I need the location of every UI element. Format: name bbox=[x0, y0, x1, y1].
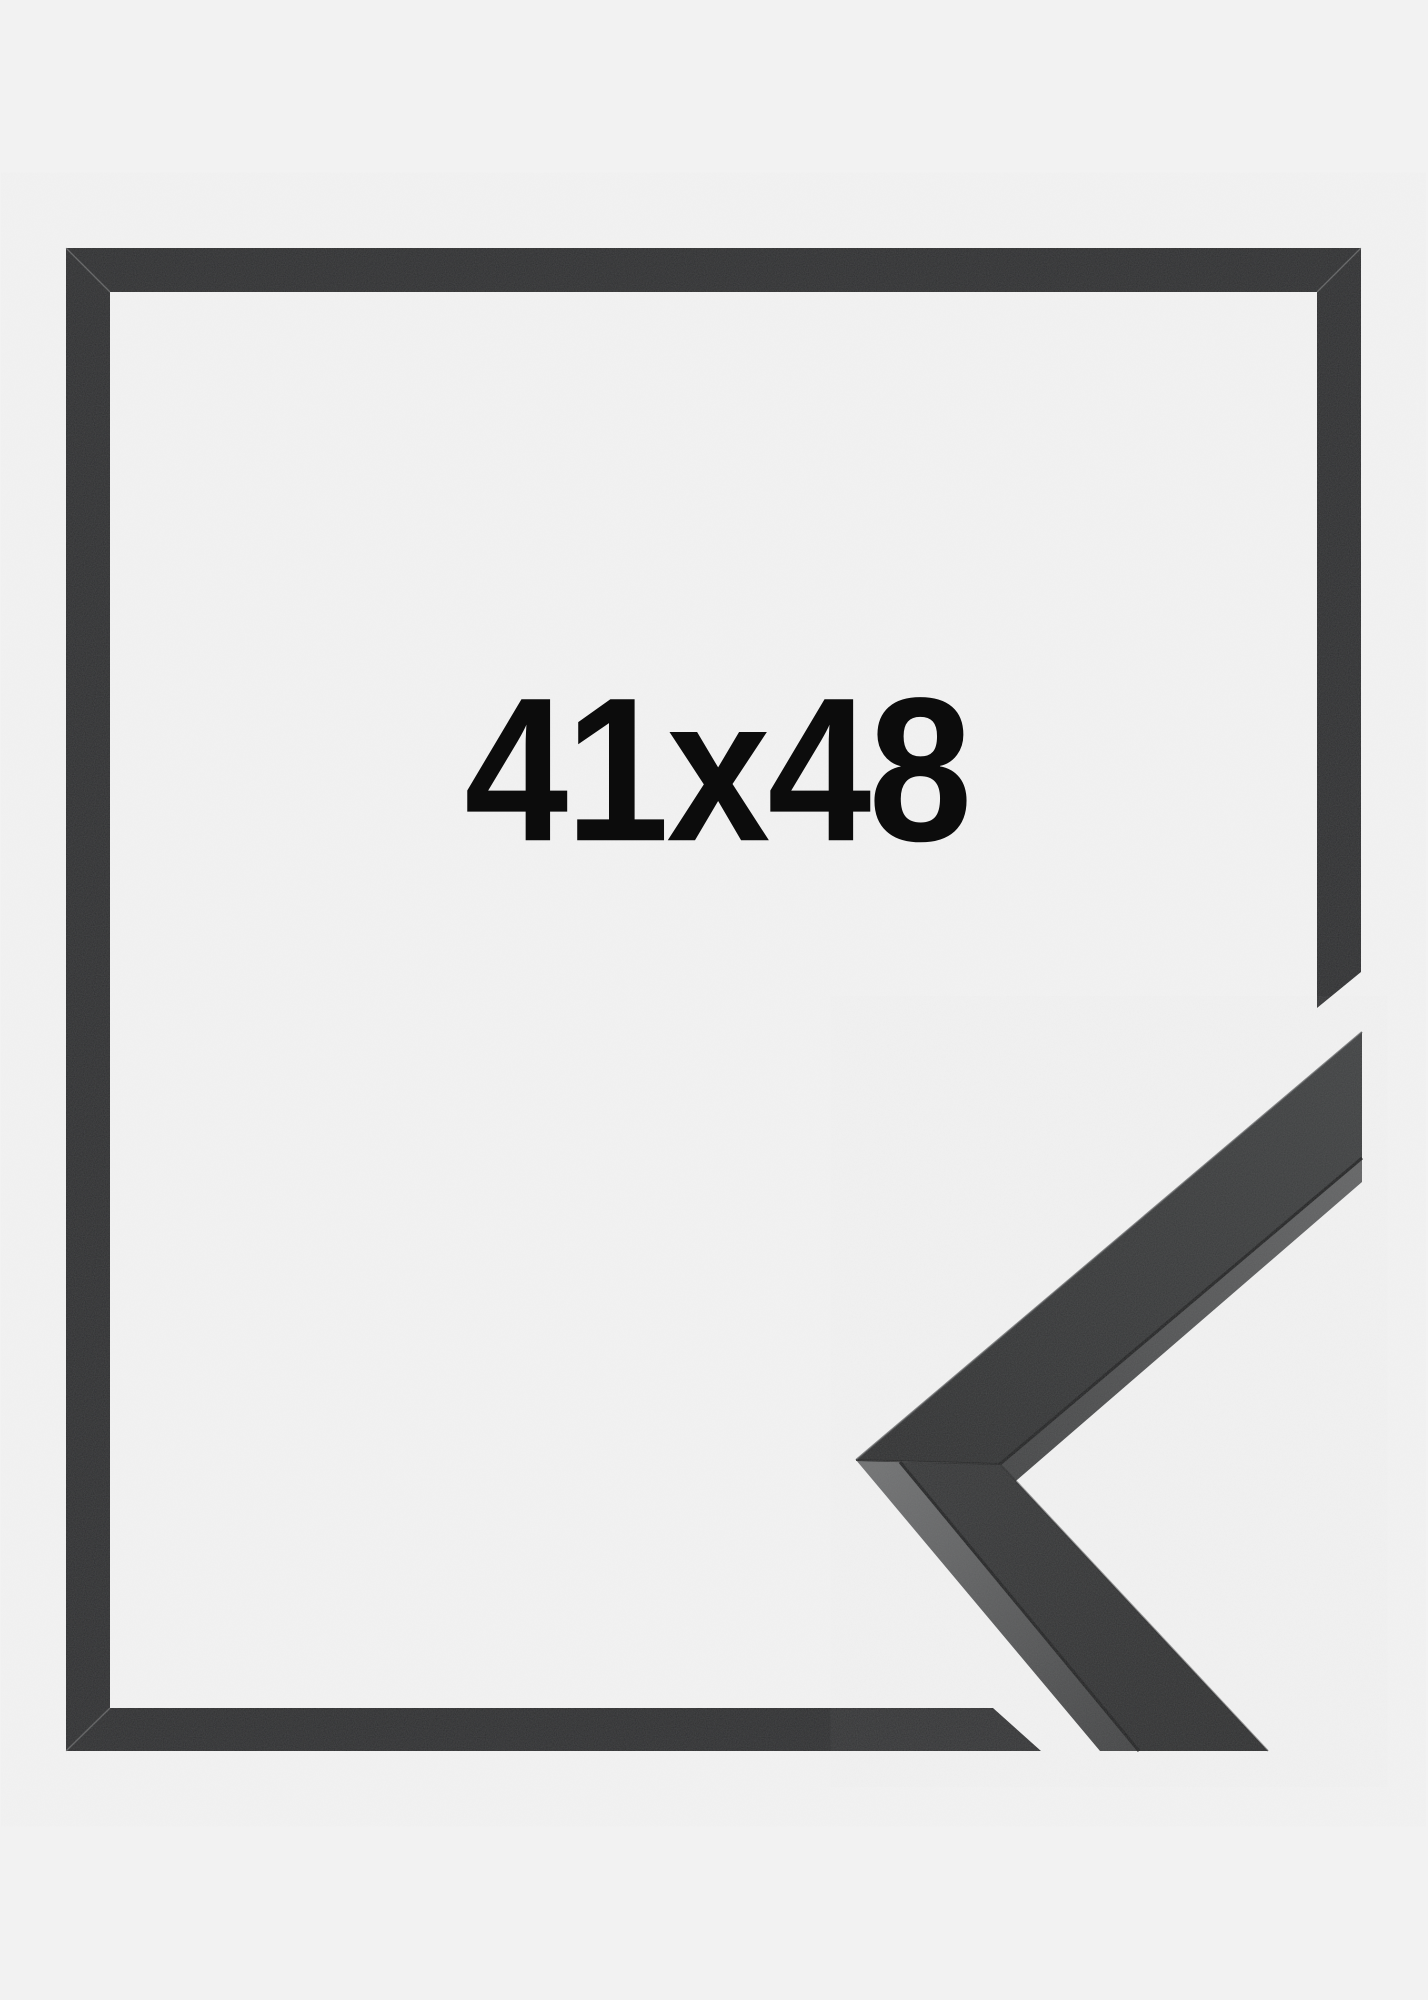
frame-top-bar bbox=[66, 248, 1361, 292]
product-image: 41x48 bbox=[0, 0, 1428, 2000]
corner-sample bbox=[856, 1032, 1362, 1751]
frame-bottom-bar bbox=[66, 1708, 1041, 1751]
frame-outline bbox=[66, 248, 1361, 1751]
frame-graphic bbox=[0, 0, 1428, 2000]
frame-right-bar bbox=[1317, 248, 1361, 1008]
frame-left-bar bbox=[66, 248, 110, 1751]
size-label: 41x48 bbox=[464, 667, 969, 872]
